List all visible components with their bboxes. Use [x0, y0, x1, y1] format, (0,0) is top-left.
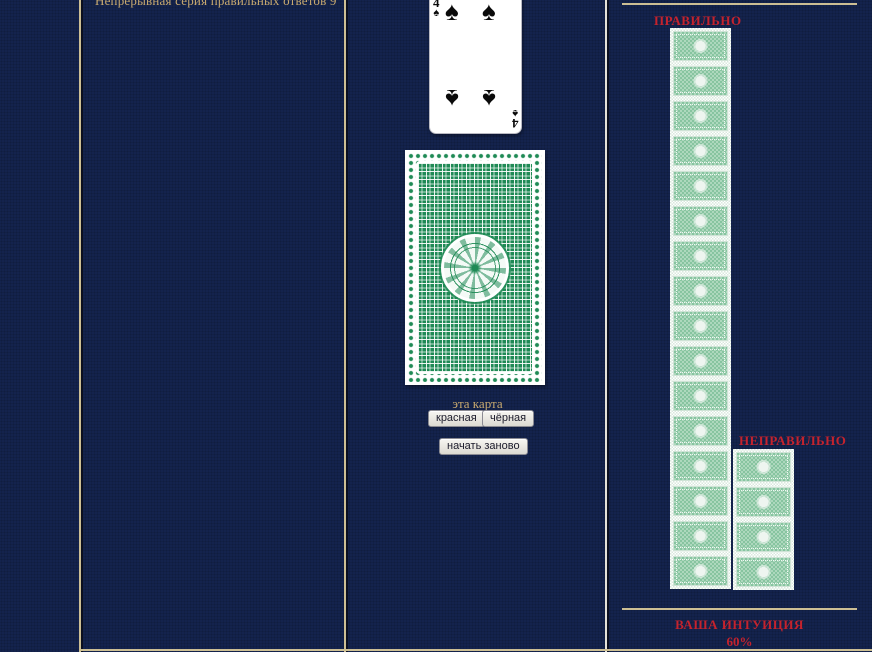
mini-card-back: [673, 206, 728, 236]
card-corner-bottom-right: 4 ♠: [512, 107, 519, 130]
mini-card-back: [673, 521, 728, 551]
left-column-divider: [79, 0, 84, 652]
guess-black-button[interactable]: чёрная: [482, 410, 534, 427]
revealed-card-4-of-spades: 4 ♠ ♠ ♠ ♠ ♠ 4 ♠: [429, 0, 522, 134]
spade-pip-icon: ♠: [445, 85, 459, 111]
restart-button[interactable]: начать заново: [439, 438, 528, 455]
mini-card-back: [673, 311, 728, 341]
guess-red-button[interactable]: красная: [428, 410, 485, 427]
mini-card-back: [673, 101, 728, 131]
mini-card-back: [673, 31, 728, 61]
mini-card-back: [673, 381, 728, 411]
spade-pip-icon: ♠: [482, 0, 496, 25]
spade-pip-icon: ♠: [482, 85, 496, 111]
mini-card-back: [736, 522, 791, 552]
card-back-medallion: [441, 234, 509, 302]
mini-card-back: [736, 557, 791, 587]
mini-card-back: [673, 416, 728, 446]
spade-suit-icon: ♠: [512, 107, 519, 118]
mini-card-back: [673, 346, 728, 376]
mini-card-back: [673, 556, 728, 586]
right-panel-bottom-line: [622, 608, 857, 610]
spade-suit-icon: ♠: [433, 8, 440, 19]
mini-card-back: [673, 241, 728, 271]
mini-card-back: [673, 66, 728, 96]
mini-card-back: [673, 486, 728, 516]
incorrect-cards-stack: [733, 449, 794, 590]
streak-counter-text: Непрерывная серия правильных ответов 9: [95, 0, 355, 9]
right-panel-top-line: [622, 3, 857, 5]
mini-card-back: [673, 171, 728, 201]
mini-card-back: [673, 451, 728, 481]
card-back-lace-border: [408, 153, 542, 382]
mini-card-back: [736, 452, 791, 482]
mini-card-back: [673, 136, 728, 166]
mini-card-back: [736, 487, 791, 517]
card-back-pattern: [416, 161, 534, 374]
intuition-percentage: 60%: [622, 634, 857, 650]
mini-card-back: [673, 276, 728, 306]
intuition-label: ВАША ИНТУИЦИЯ: [622, 617, 857, 633]
deck-card-back: [405, 150, 545, 385]
correct-cards-stack: [670, 28, 731, 589]
incorrect-column-label: НЕПРАВИЛЬНО: [739, 433, 846, 449]
correct-column-label: ПРАВИЛЬНО: [654, 13, 742, 29]
card-intuition-game: { "left_panel": { "streak_text": "Непрер…: [0, 0, 872, 652]
spade-pip-icon: ♠: [445, 0, 459, 25]
card-corner-top-left: 4 ♠: [433, 0, 440, 19]
right-column-divider: [605, 0, 610, 652]
intuition-score-block: ВАША ИНТУИЦИЯ 60%: [622, 617, 857, 650]
middle-column-divider: [344, 0, 349, 652]
